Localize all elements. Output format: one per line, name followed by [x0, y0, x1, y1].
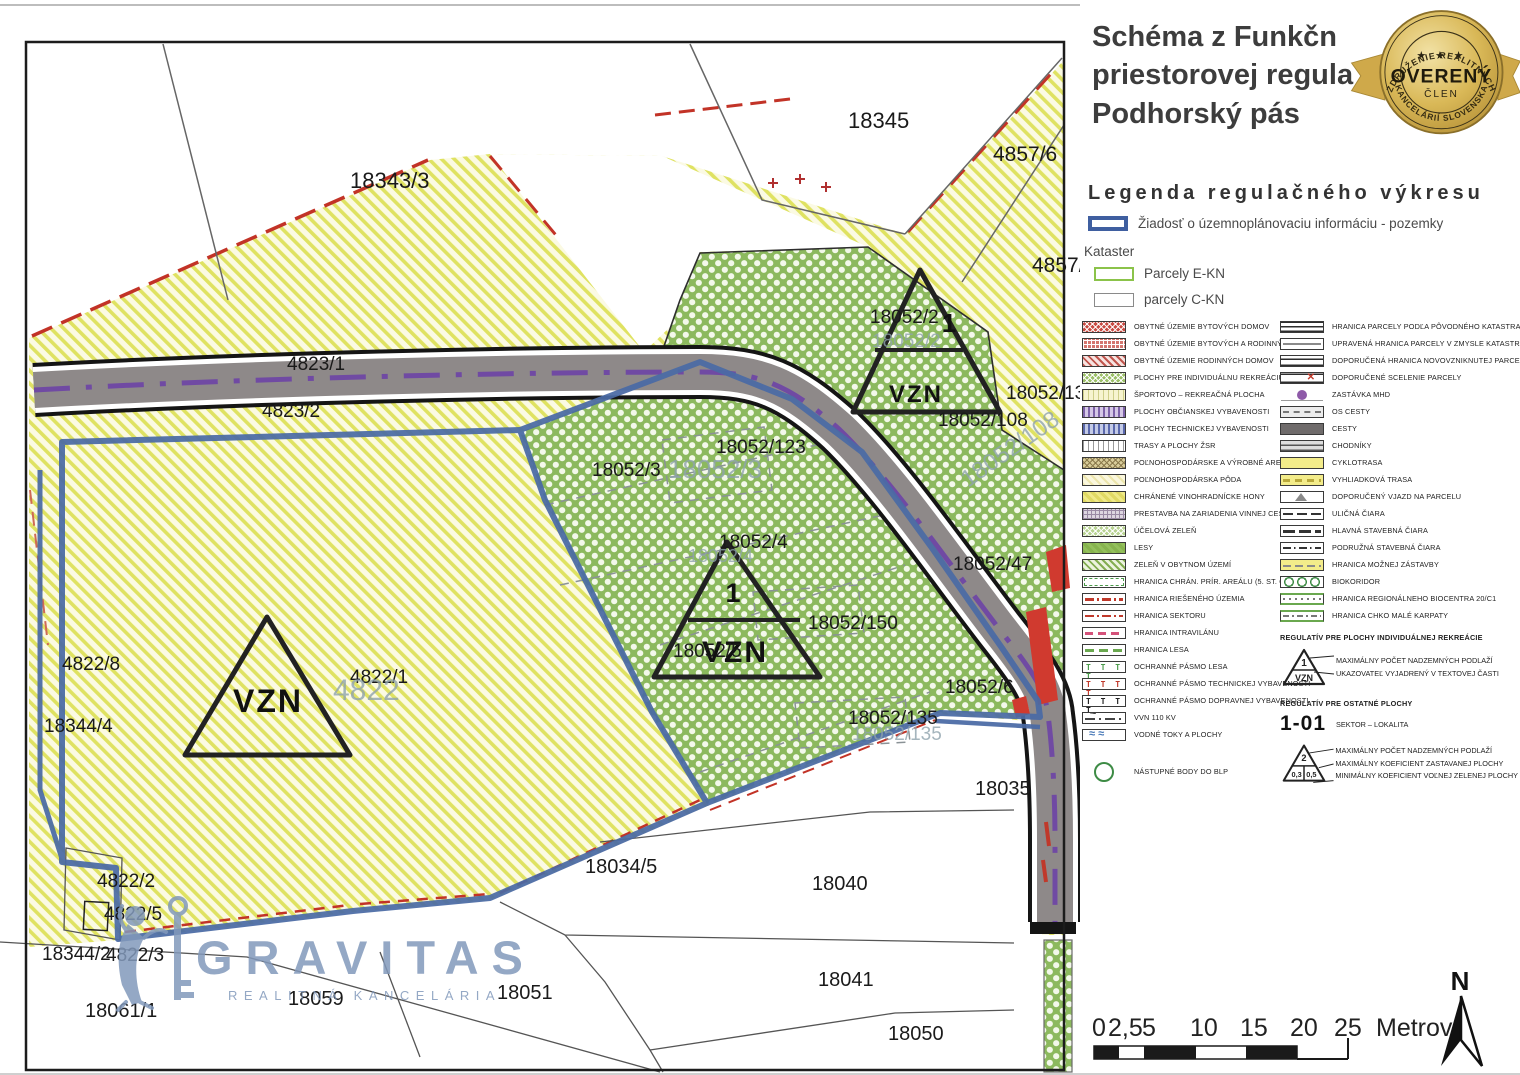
- legend-item: HRANICA SEKTORU: [1082, 607, 1280, 624]
- parcel-label: 18035: [975, 778, 1031, 800]
- yellow-v-swatch: [1082, 389, 1126, 401]
- legend-item-label: Parcely E-KN: [1144, 266, 1225, 281]
- vzn-triangle-legend-icon: 1 VZN: [1280, 646, 1336, 690]
- legend-item-label: PLOCHY TECHNICKEJ VYBAVENOSTI: [1134, 424, 1269, 433]
- legend-item: HLAVNÁ STAVEBNÁ ČIARA: [1280, 522, 1518, 539]
- regulativ-individual-symbol: 1 VZN MAXIMÁLNY POČET NADZEMNÝCH PODLAŽÍ…: [1280, 646, 1518, 690]
- legend-item: ZASTÁVKA MHD: [1280, 386, 1518, 403]
- overeny-clen-badge: ZDRUŽENIE REALITNÝCH ★ ★ ★ OVERENÝ ČLEN …: [1346, 0, 1520, 150]
- sektor-label: SEKTOR – LOKALITA: [1336, 720, 1408, 729]
- recreation-green-bottom-strip: [1044, 940, 1072, 1072]
- khaki-cross-swatch: [1082, 457, 1126, 469]
- road-end-cap: [1030, 922, 1076, 934]
- legend-item: LESY: [1082, 539, 1280, 556]
- scale-tick-label: 2,5: [1108, 1014, 1143, 1042]
- badge-stars: ★ ★ ★: [1416, 50, 1466, 62]
- legend-item-label: VYHLIADKOVÁ TRASA: [1332, 475, 1412, 484]
- svg-text:1: 1: [1301, 658, 1307, 669]
- scale-tick-label: 25: [1334, 1014, 1362, 1042]
- legend-item-request: Žiadosť o územnoplánovaciu informáciu - …: [1088, 216, 1443, 231]
- legend-item: DOPORUČENÉ SCELENIE PARCELY: [1280, 369, 1518, 386]
- legend-item: OS CESTY: [1280, 403, 1518, 420]
- legend-item-label: HRANICA PARCELY PODĽA PÔVODNÉHO KATASTRA: [1332, 322, 1520, 331]
- legend-item: DOPORUČENÁ HRANICA NOVOVZNIKNUTEJ PARCEL…: [1280, 352, 1518, 369]
- vzn-label: VZN: [889, 381, 943, 408]
- legend-item-label: NÁSTUPNÉ BODY DO BLP: [1134, 767, 1228, 776]
- t-green-swatch: [1082, 661, 1126, 673]
- red-dot-swatch: [1082, 338, 1126, 350]
- parcel-label: 18344/2: [42, 944, 111, 965]
- parcel-label: 18041: [818, 969, 874, 991]
- scale-tick-label: 0: [1092, 1014, 1106, 1042]
- legend-item: OCHRANNÉ PÁSMO DOPRAVNEJ VYBAVENOSTI: [1082, 692, 1280, 709]
- parcel-label: 18052/2: [870, 307, 939, 328]
- vzn-storeys-label: 1: [942, 308, 956, 338]
- chko-swatch: [1280, 610, 1324, 622]
- parcel-label: 18052/6: [945, 677, 1014, 698]
- legend-item: VODNÉ TOKY A PLOCHY: [1082, 726, 1280, 743]
- legend-item: HRANICA REGIONÁLNEHO BIOCENTRA 20/C1: [1280, 590, 1518, 607]
- faded-parcel-label: 4822: [333, 674, 400, 707]
- cyklo-swatch: [1280, 457, 1324, 469]
- legend-item: OBYTNÉ ÚZEMIE BYTOVÝCH DOMOV: [1082, 318, 1280, 335]
- legend-item: HRANICA CHRÁN. PRÍR. AREÁLU (5. ST. OCHR…: [1082, 573, 1280, 590]
- gravitas-wordmark: GRAVITAS: [196, 931, 536, 984]
- regulativ-line: MAXIMÁLNY POČET NADZEMNÝCH PODLAŽÍ: [1335, 745, 1518, 758]
- biocentrum-swatch: [1280, 593, 1324, 605]
- legend-item-label: VODNÉ TOKY A PLOCHY: [1134, 730, 1222, 739]
- yellow-swatch: [1082, 491, 1126, 503]
- legend-item-label: HRANICA INTRAVILÁNU: [1134, 628, 1219, 637]
- legend-item-label: PODRUŽNÁ STAVEBNÁ ČIARA: [1332, 543, 1441, 552]
- legend-item-label: PLOCHY PRE INDIVIDUÁLNU REKREÁCIU: [1134, 373, 1284, 382]
- legend-item: ŠPORTOVO – REKREAČNÁ PLOCHA: [1082, 386, 1280, 403]
- border-green-dash-swatch: [1082, 576, 1126, 588]
- legend-item-ckn: parcely C-KN: [1094, 292, 1224, 307]
- green-cross-swatch: [1082, 372, 1126, 384]
- legend-item-label: HRANICA RIEŠENÉHO ÚZEMIA: [1134, 594, 1245, 603]
- legend-item-label: HRANICA SEKTORU: [1134, 611, 1206, 620]
- vvn-swatch: [1082, 712, 1126, 724]
- scale-tick-label: 10: [1190, 1014, 1218, 1042]
- ln-red-dashdot-thin-swatch: [1082, 610, 1126, 622]
- legend-column-left: OBYTNÉ ÚZEMIE BYTOVÝCH DOMOVOBYTNÉ ÚZEMI…: [1082, 318, 1280, 792]
- sektor-triangle-legend-icon: 2 0,3 0,5: [1280, 738, 1335, 790]
- legend-item-label: PRESTAVBA NA ZARIADENIA VINNEJ CESTY: [1134, 509, 1293, 518]
- parcel-label: 4822/8: [62, 654, 120, 675]
- grid-purple-swatch: [1082, 508, 1126, 520]
- red-cross-swatch: [1082, 321, 1126, 333]
- regulativ-line: MINIMÁLNY KOEFICIENT VOĽNEJ ZELENEJ PLOC…: [1335, 770, 1518, 783]
- blue-v-swatch: [1082, 423, 1126, 435]
- scanned-zoning-map-page: 1VZN1VZNVZN 18343/3183454857/64857/21805…: [0, 0, 1520, 1075]
- faded-parcel-label: 18052/3: [668, 454, 762, 484]
- legend-item-label: UPRAVENÁ HRANICA PARCELY V ZMYSLE KATAST…: [1332, 339, 1520, 348]
- dbl-black-swatch: [1280, 321, 1324, 333]
- svg-text:0,5: 0,5: [1306, 770, 1316, 779]
- kataster-heading: Kataster: [1084, 244, 1134, 259]
- legend-item-label: HRANICA CHKO MALÉ KARPATY: [1332, 611, 1448, 620]
- regulativ-line: MAXIMÁLNY KOEFICIENT ZASTAVANEJ PLOCHY: [1335, 758, 1518, 771]
- legend-item-label: POĽNOHOSPODÁRSKA PÔDA: [1134, 475, 1241, 484]
- green-swatch: [1082, 542, 1126, 554]
- parcel-label: 18052/3: [592, 460, 661, 481]
- regulativ-other-symbol: 2 0,3 0,5 MAXIMÁLNY POČET NADZEMNÝCH POD…: [1280, 738, 1518, 790]
- legend-column-right: HRANICA PARCELY PODĽA PÔVODNÉHO KATASTRA…: [1280, 318, 1518, 792]
- parcel-label: 4857/6: [993, 143, 1057, 166]
- legend-item: PRESTAVBA NA ZARIADENIA VINNEJ CESTY: [1082, 505, 1280, 522]
- parcel-label: 18050: [888, 1023, 944, 1045]
- legend-item: CYKLOTRASA: [1280, 454, 1518, 471]
- legend-item: OBYTNÉ ÚZEMIE RODINNÝCH DOMOV: [1082, 352, 1280, 369]
- faded-parcel-label: 18052/135: [852, 724, 942, 745]
- legend-item: TRASY A PLOCHY ŽSR: [1082, 437, 1280, 454]
- legend-item-label: ŠPORTOVO – REKREAČNÁ PLOCHA: [1134, 390, 1265, 399]
- mhd-swatch: [1280, 389, 1324, 401]
- circle-green-swatch: [1094, 762, 1114, 782]
- legend-item-ekn: Parcely E-KN: [1094, 266, 1225, 281]
- ln-green-dash-swatch: [1082, 644, 1126, 656]
- scale-tick-label: 15: [1240, 1014, 1268, 1042]
- legend-item-label: OBYTNÉ ÚZEMIE RODINNÝCH DOMOV: [1134, 356, 1274, 365]
- regulativ-individual-lines: MAXIMÁLNY POČET NADZEMNÝCH PODLAŽÍ UKAZO…: [1336, 655, 1499, 681]
- survey-marks: [768, 174, 831, 192]
- legend-panel: Schéma z Funkčn priestorovej regula Podh…: [1080, 0, 1520, 1075]
- legend-item-label: HRANICA REGIONÁLNEHO BIOCENTRA 20/C1: [1332, 594, 1496, 603]
- regulativ-other-lines: MAXIMÁLNY POČET NADZEMNÝCH PODLAŽÍ MAXIM…: [1335, 745, 1518, 783]
- parcel-label: 18052/139: [1006, 383, 1080, 404]
- legend-item-label: DOPORUČENÝ VJAZD NA PARCELU: [1332, 492, 1461, 501]
- legend-item: NÁSTUPNÉ BODY DO BLP: [1082, 763, 1280, 780]
- legend-item: PLOCHY TECHNICKEJ VYBAVENOSTI: [1082, 420, 1280, 437]
- faded-parcel-label: 18052/2: [872, 331, 941, 352]
- regulativ-line: MAXIMÁLNY POČET NADZEMNÝCH PODLAŽÍ: [1336, 655, 1499, 668]
- legend-item-label: CYKLOTRASA: [1332, 458, 1383, 467]
- legend-item-label: BIOKORIDOR: [1332, 577, 1380, 586]
- legend-item: HRANICA INTRAVILÁNU: [1082, 624, 1280, 641]
- legend-item: PLOCHY OBČIANSKEJ VYBAVENOSTI: [1082, 403, 1280, 420]
- legend-item-label: HRANICA LESA: [1134, 645, 1189, 654]
- parcel-label: 4822/2: [97, 871, 155, 892]
- ln-gray-swatch: [1280, 338, 1324, 350]
- legend-item: ZELEŇ V OBYTNOM ÚZEMÍ: [1082, 556, 1280, 573]
- legend-item: OBYTNÉ ÚZEMIE BYTOVÝCH A RODINNÝCH DOMOV: [1082, 335, 1280, 352]
- parcel-label: 18052/108: [938, 410, 1028, 431]
- request-boundary-swatch: [1088, 216, 1128, 231]
- biokoridor-swatch: [1280, 576, 1324, 588]
- legend-item: PLOCHY PRE INDIVIDUÁLNU REKREÁCIU: [1082, 369, 1280, 386]
- sektor-code: 1-01: [1280, 712, 1326, 736]
- legend-title: Legenda regulačného výkresu: [1088, 182, 1484, 205]
- legend-item: PODRUŽNÁ STAVEBNÁ ČIARA: [1280, 539, 1518, 556]
- parcel-label: 18034/5: [585, 856, 657, 878]
- vzn-label: VZN: [233, 683, 303, 719]
- legend-item-label: HRANICA MOŽNEJ ZÁSTAVBY: [1332, 560, 1439, 569]
- parcel-label: 18052/150: [808, 613, 898, 634]
- legend-grid: OBYTNÉ ÚZEMIE BYTOVÝCH DOMOVOBYTNÉ ÚZEMI…: [1082, 318, 1518, 792]
- legend-item-label: LESY: [1134, 543, 1153, 552]
- scale-tick-label: 5: [1142, 1014, 1156, 1042]
- parcel-label: 18345: [848, 108, 909, 133]
- green-dot-swatch: [1082, 525, 1126, 537]
- legend-item-label: ULIČNÁ ČIARA: [1332, 509, 1385, 518]
- legend-item: UPRAVENÁ HRANICA PARCELY V ZMYSLE KATAST…: [1280, 335, 1518, 352]
- legend-item: HRANICA RIEŠENÉHO ÚZEMIA: [1082, 590, 1280, 607]
- svg-text:N: N: [1451, 968, 1470, 996]
- legend-item: DOPORUČENÝ VJAZD NA PARCELU: [1280, 488, 1518, 505]
- sektor-lokalita-row: 1-01 SEKTOR – LOKALITA: [1280, 712, 1518, 736]
- pale-yellow-swatch: [1082, 474, 1126, 486]
- legend-item-label: DOPORUČENÁ HRANICA NOVOVZNIKNUTEJ PARCEL…: [1332, 356, 1520, 365]
- legend-item: ÚČELOVÁ ZELEŇ: [1082, 522, 1280, 539]
- legend-item-label: POĽNOHOSPODÁRSKE A VÝROBNÉ AREÁLY: [1134, 458, 1295, 467]
- t-black-swatch: [1082, 695, 1126, 707]
- legend-item: BIOKORIDOR: [1280, 573, 1518, 590]
- legend-item-label: OBYTNÉ ÚZEMIE BYTOVÝCH DOMOV: [1134, 322, 1269, 331]
- os-cesty-swatch: [1280, 406, 1324, 418]
- chodniky-swatch: [1280, 440, 1324, 452]
- legend-item: CESTY: [1280, 420, 1518, 437]
- legend-item: POĽNOHOSPODÁRSKE A VÝROBNÉ AREÁLY: [1082, 454, 1280, 471]
- podruzna-swatch: [1280, 542, 1324, 554]
- legend-item: VVN 110 KV: [1082, 709, 1280, 726]
- north-arrow: N: [1428, 968, 1498, 1073]
- vjazd-swatch: [1280, 491, 1324, 503]
- svg-text:2: 2: [1301, 753, 1306, 763]
- regulativ-other-title: REGULATÍV PRE OSTATNÉ PLOCHY: [1280, 699, 1518, 708]
- legend-item: HRANICA PARCELY PODĽA PÔVODNÉHO KATASTRA: [1280, 318, 1518, 335]
- parcel-label: 4857/2: [1032, 254, 1080, 277]
- landuse-areas: [29, 60, 1072, 1072]
- badge-sub-text: ČLEN: [1424, 87, 1459, 100]
- vzn-storeys-label: 1: [725, 578, 740, 608]
- legend-item-label: CESTY: [1332, 424, 1357, 433]
- legend-item: ULIČNÁ ČIARA: [1280, 505, 1518, 522]
- regulativ-individual-title: REGULATÍV PRE PLOCHY INDIVIDUÁLNEJ REKRE…: [1280, 633, 1518, 642]
- legend-item-label: VVN 110 KV: [1134, 713, 1176, 722]
- legend-item: HRANICA LESA: [1082, 641, 1280, 658]
- green-diag-swatch: [1082, 559, 1126, 571]
- vyhliadka-swatch: [1280, 474, 1324, 486]
- ln-red-dashdot-swatch: [1082, 593, 1126, 605]
- parcely-ekn-swatch: [1094, 267, 1134, 281]
- parcel-label: 4823/2: [262, 401, 320, 422]
- legend-item-label: OS CESTY: [1332, 407, 1370, 416]
- ulicna-swatch: [1280, 508, 1324, 520]
- dbl-black2-swatch: [1280, 355, 1324, 367]
- legend-item-label: CHODNÍKY: [1332, 441, 1372, 450]
- legend-item-label: OCHRANNÉ PÁSMO LESA: [1134, 662, 1228, 671]
- parcel-label: 18343/3: [350, 168, 430, 193]
- parcel-label: 18040: [812, 873, 868, 895]
- scale-tick-label: 20: [1290, 1014, 1318, 1042]
- parcel-label: 18052/5: [673, 641, 742, 662]
- water-swatch: [1082, 729, 1126, 741]
- legend-item-label: PLOCHY OBČIANSKEJ VYBAVENOSTI: [1134, 407, 1269, 416]
- white-v-swatch: [1082, 440, 1126, 452]
- ln-pink-dash-swatch: [1082, 627, 1126, 639]
- parcel-label: 18051: [497, 982, 553, 1004]
- legend-item-label: parcely C-KN: [1144, 292, 1224, 307]
- scelenie-swatch: [1280, 372, 1324, 384]
- legend-item: HRANICA CHKO MALÉ KARPATY: [1280, 607, 1518, 624]
- faded-parcel-label: 18052/4: [688, 546, 753, 566]
- parcel-label: 18052/47: [953, 554, 1032, 575]
- legend-item-label: DOPORUČENÉ SCELENIE PARCELY: [1332, 373, 1461, 382]
- legend-item: POĽNOHOSPODÁRSKA PÔDA: [1082, 471, 1280, 488]
- zoning-map: 1VZN1VZNVZN 18343/3183454857/64857/21805…: [0, 0, 1080, 1075]
- legend-item-label: ZASTÁVKA MHD: [1332, 390, 1390, 399]
- hlavna-swatch: [1280, 525, 1324, 537]
- parcely-ckn-swatch: [1094, 293, 1134, 307]
- parcel-label: 18344/4: [44, 716, 113, 737]
- legend-item: CHRÁNENÉ VINOHRADNÍCKE HONY: [1082, 488, 1280, 505]
- legend-item: OCHRANNÉ PÁSMO LESA: [1082, 658, 1280, 675]
- legend-item: CHODNÍKY: [1280, 437, 1518, 454]
- legend-item-label: ÚČELOVÁ ZELEŇ: [1134, 526, 1196, 535]
- legend-item-label: CHRÁNENÉ VINOHRADNÍCKE HONY: [1134, 492, 1265, 501]
- cesty-swatch: [1280, 423, 1324, 435]
- regulativ-line: UKAZOVATEĽ VYJADRENÝ V TEXTOVEJ ČASTI: [1336, 668, 1499, 681]
- legend-item-label: TRASY A PLOCHY ŽSR: [1134, 441, 1216, 450]
- legend-item-label: HLAVNÁ STAVEBNÁ ČIARA: [1332, 526, 1428, 535]
- purple-v-swatch: [1082, 406, 1126, 418]
- legend-item-label: ZELEŇ V OBYTNOM ÚZEMÍ: [1134, 560, 1231, 569]
- svg-text:0,3: 0,3: [1291, 770, 1301, 779]
- red-diag-swatch: [1082, 355, 1126, 367]
- legend-item: HRANICA MOŽNEJ ZÁSTAVBY: [1280, 556, 1518, 573]
- parcel-label: 4823/1: [287, 354, 345, 375]
- svg-text:VZN: VZN: [1295, 673, 1313, 683]
- legend-item: OCHRANNÉ PÁSMO TECHNICKEJ VYBAVENOSTI: [1082, 675, 1280, 692]
- legend-item-label: Žiadosť o územnoplánovaciu informáciu - …: [1138, 216, 1443, 231]
- t-red-swatch: [1082, 678, 1126, 690]
- legend-item: VYHLIADKOVÁ TRASA: [1280, 471, 1518, 488]
- badge-main-text: OVERENÝ: [1391, 63, 1493, 87]
- gravitas-subtitle: REALITNÁ KANCELÁRIA: [228, 988, 501, 1003]
- zastavba-swatch: [1280, 559, 1324, 571]
